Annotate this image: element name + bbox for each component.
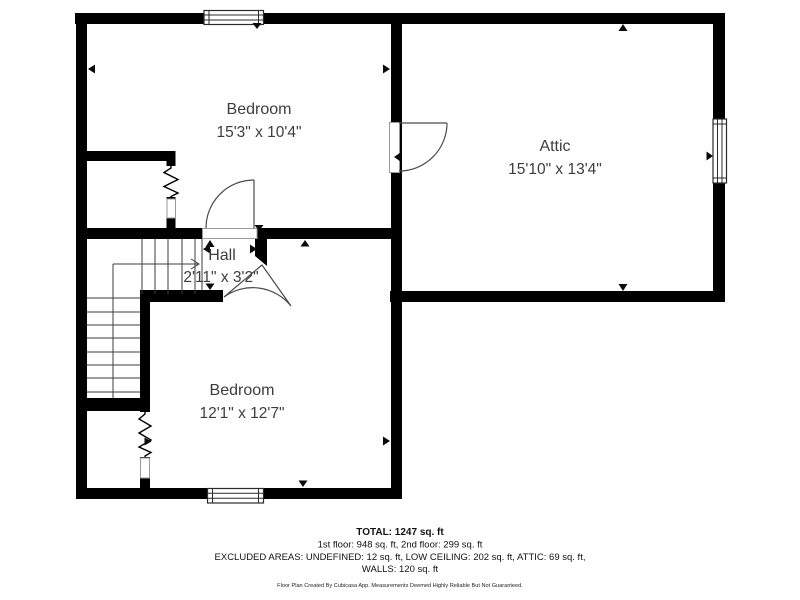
dimension-marker: [301, 240, 310, 247]
door-bedroom1: [203, 180, 258, 239]
wall-left: [76, 13, 87, 499]
wall-bedroom-attic-divider: [391, 24, 402, 489]
floor-plan-page: Bedroom 15'3" x 10'4" Attic 15'10" x 13'…: [0, 0, 800, 600]
window-bottom: [208, 489, 264, 504]
area-summary: TOTAL: 1247 sq. ft 1st floor: 948 sq. ft…: [215, 527, 586, 575]
closet-opening-jamb: [167, 199, 176, 218]
room-dims-hall: 2'11" x 3'2": [183, 269, 258, 286]
interior-walls: [76, 24, 402, 499]
dimension-marker: [619, 284, 628, 291]
floor-plan-drawing: Bedroom 15'3" x 10'4" Attic 15'10" x 13'…: [0, 0, 800, 600]
window-right: [713, 119, 727, 183]
door-jamb: [390, 123, 400, 173]
summary-excluded: EXCLUDED AREAS: UNDEFINED: 12 sq. ft, LO…: [215, 552, 586, 563]
window-icon: [204, 11, 264, 25]
room-label-hall: Hall: [208, 247, 236, 264]
summary-total: TOTAL: 1247 sq. ft: [356, 527, 444, 538]
room-dims-bedroom-2: 12'1" x 12'7": [199, 405, 284, 422]
dimension-marker: [383, 437, 390, 446]
dimension-marker: [299, 481, 308, 488]
wall-closet-top: [76, 151, 175, 161]
window-icon: [713, 119, 727, 183]
door-attic: [390, 123, 448, 173]
room-dims-attic: 15'10" x 13'4": [508, 161, 602, 178]
bedroom2-opening-jamb: [141, 458, 150, 478]
room-label-bedroom-2: Bedroom: [210, 382, 275, 399]
wall-stairs-bottom: [76, 398, 150, 411]
wall-attic-bottom: [390, 291, 725, 302]
dimension-marker: [619, 24, 628, 31]
disclaimer-text: Floor Plan Created By Cubicasa App. Meas…: [277, 583, 523, 589]
door-swing-arc: [399, 123, 447, 171]
wall-top: [75, 13, 725, 24]
dimension-marker: [383, 65, 390, 74]
summary-walls: WALLS: 120 sq. ft: [362, 564, 439, 575]
door-swing-arc: [206, 180, 254, 228]
room-dims-bedroom-1: 15'3" x 10'4": [216, 124, 301, 141]
door-jamb: [203, 229, 258, 239]
summary-floors: 1st floor: 948 sq. ft, 2nd floor: 299 sq…: [318, 540, 483, 551]
window-icon: [208, 489, 264, 504]
wall-break-closet: [164, 164, 178, 218]
dimension-marker: [707, 152, 714, 161]
window-top: [204, 11, 264, 25]
room-label-attic: Attic: [539, 138, 570, 155]
wall-break-bedroom2: [139, 410, 152, 478]
room-label-bedroom-1: Bedroom: [227, 101, 292, 118]
dimension-marker: [253, 23, 262, 29]
dimension-marker: [88, 65, 95, 74]
